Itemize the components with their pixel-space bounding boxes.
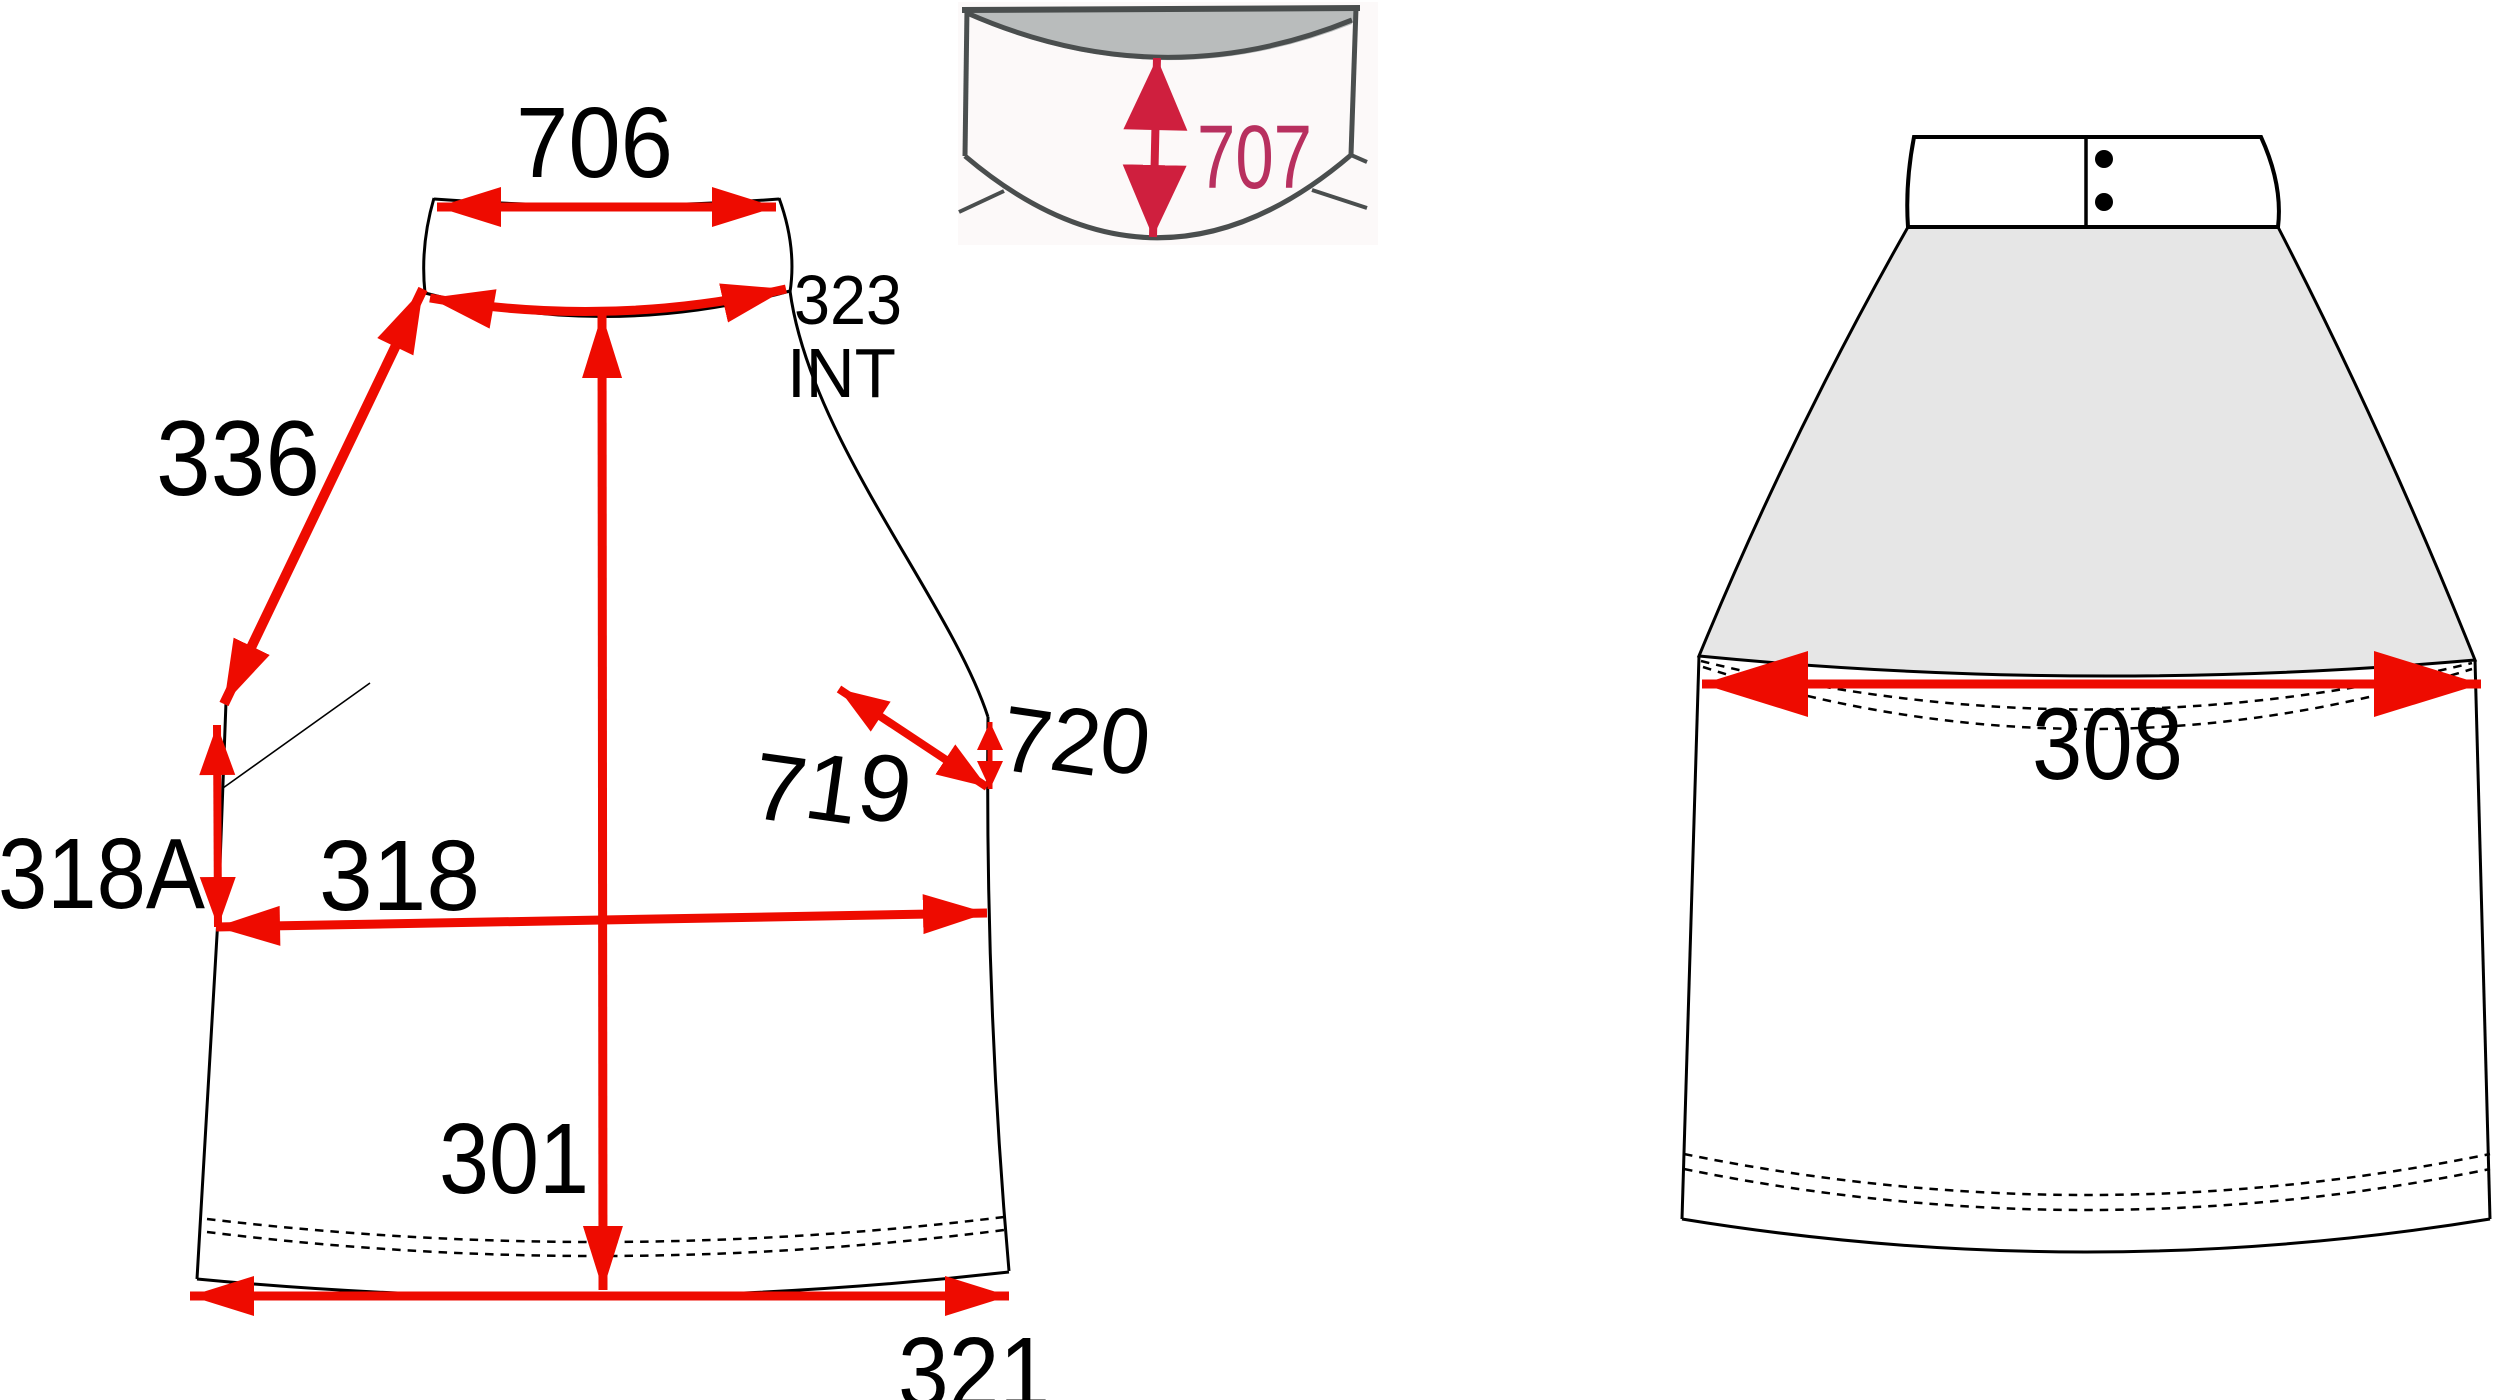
svg-text:323: 323 <box>794 261 902 339</box>
svg-text:318: 318 <box>319 820 480 932</box>
svg-text:INT: INT <box>787 334 896 412</box>
svg-text:719: 719 <box>746 733 918 845</box>
svg-text:308: 308 <box>2032 687 2183 801</box>
svg-text:318A: 318A <box>0 818 205 930</box>
svg-text:321: 321 <box>898 1317 1050 1400</box>
svg-text:336: 336 <box>156 398 320 518</box>
svg-text:720: 720 <box>995 686 1157 796</box>
svg-text:301: 301 <box>439 1103 589 1215</box>
svg-text:707: 707 <box>1197 108 1312 208</box>
svg-text:706: 706 <box>516 87 673 199</box>
